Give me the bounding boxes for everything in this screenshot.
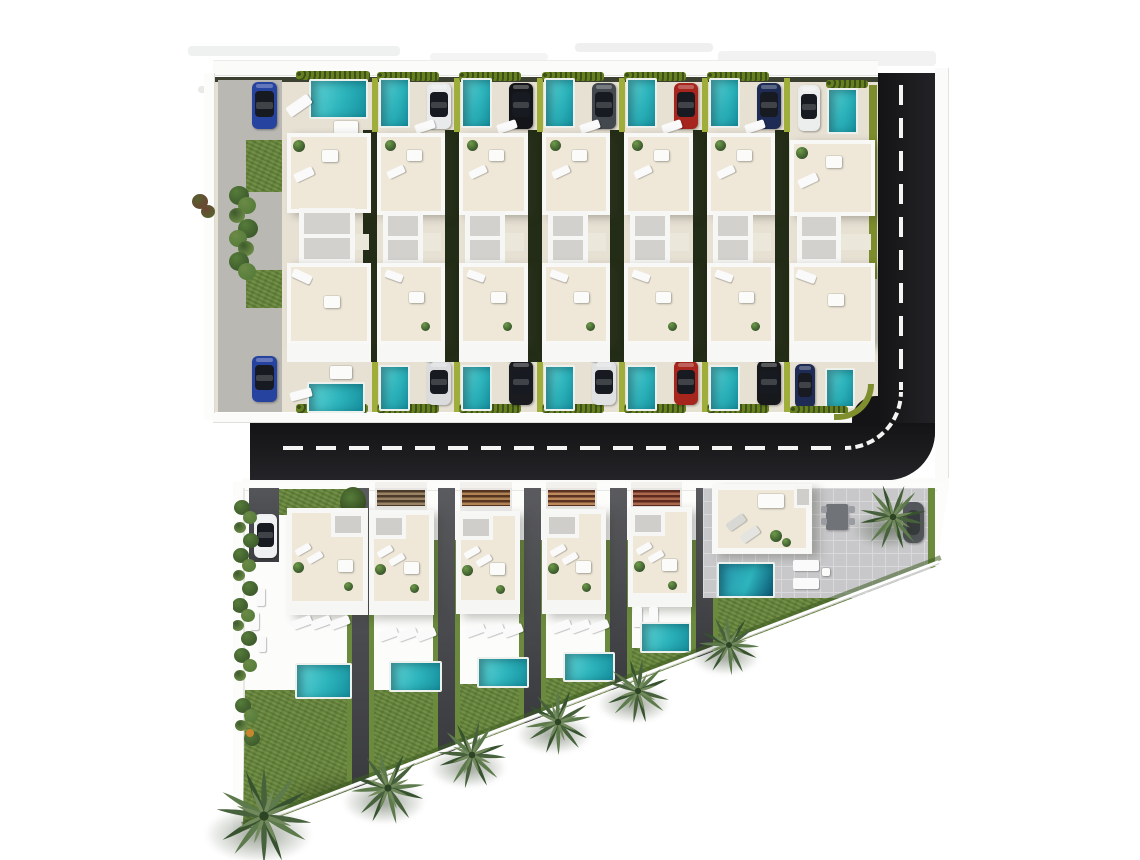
plant — [586, 322, 595, 331]
plant — [421, 322, 430, 331]
site-plan-stage — [0, 0, 1140, 860]
swimming-pool — [379, 78, 410, 128]
car-hood — [802, 87, 816, 91]
green-divider — [454, 78, 460, 132]
atrium-divider — [388, 236, 418, 240]
dining-set — [826, 156, 842, 168]
car-hood — [678, 363, 694, 367]
shrub — [243, 659, 257, 672]
swimming-pool — [477, 657, 529, 688]
shrub — [235, 720, 247, 731]
car-hood — [256, 84, 273, 88]
car-hood — [678, 85, 694, 89]
car-hood — [799, 366, 811, 370]
building-gap — [775, 130, 789, 362]
terrace-edge — [458, 600, 518, 612]
dining-set — [490, 563, 505, 575]
sidewalk — [204, 73, 215, 420]
atrium-divider — [635, 236, 665, 240]
skylight-panel — [372, 514, 406, 539]
palm-tree — [212, 764, 316, 860]
atrium-skylight — [548, 211, 588, 265]
dining-set — [758, 494, 784, 508]
swimming-pool — [307, 382, 365, 413]
shrub — [242, 559, 256, 572]
skylight-panel — [545, 513, 579, 538]
car-roof — [513, 102, 529, 108]
car-hood — [256, 358, 273, 362]
swimming-pool — [717, 562, 775, 598]
atrium-skylight — [630, 211, 670, 265]
dining-set — [330, 366, 352, 379]
parked-car — [798, 85, 820, 131]
car-roof — [678, 379, 694, 385]
atrium-divider — [718, 236, 748, 240]
atrium-skylight — [713, 211, 753, 265]
plant — [293, 140, 305, 152]
terrace-edge — [542, 345, 610, 362]
shrub — [234, 522, 246, 533]
terrace-edge — [630, 593, 690, 605]
building-gap — [445, 130, 459, 362]
pergola — [375, 488, 427, 508]
car-roof — [761, 102, 777, 108]
swimming-pool — [461, 78, 492, 128]
car-hood — [761, 85, 777, 89]
sun-lounger — [258, 636, 266, 652]
dining-set — [574, 292, 589, 303]
shrub — [241, 609, 255, 622]
atrium-skylight — [383, 211, 423, 265]
terrace-edge — [707, 345, 775, 362]
car-hood — [596, 363, 612, 367]
chair — [849, 506, 855, 513]
plant — [503, 322, 512, 331]
shrub — [243, 533, 259, 548]
car-roof — [596, 102, 612, 108]
car-hood — [431, 363, 447, 367]
car-roof — [799, 382, 811, 388]
terrace-edge — [459, 345, 528, 362]
car-hood — [596, 85, 612, 89]
swimming-pool — [379, 365, 410, 411]
plant — [467, 140, 478, 151]
car-roof — [258, 532, 273, 538]
swimming-pool — [709, 365, 740, 411]
sun-lounger — [793, 560, 819, 571]
green-divider — [372, 78, 378, 132]
pergola — [546, 488, 597, 508]
atrium-skylight — [299, 208, 355, 264]
dining-set — [654, 150, 669, 161]
parked-car — [592, 361, 616, 405]
green-divider — [702, 78, 708, 132]
dining-set — [404, 562, 419, 574]
shrub — [243, 511, 257, 524]
sun-lounger — [793, 578, 819, 589]
outer-sidewalk-mark — [188, 46, 400, 56]
car-roof — [513, 379, 529, 385]
skylight-panel — [331, 512, 365, 537]
swimming-pool — [626, 365, 657, 411]
skylight-panel — [794, 486, 812, 508]
chair — [821, 518, 827, 525]
dining-set — [656, 292, 671, 303]
plant — [632, 140, 643, 151]
plant — [550, 140, 561, 151]
green-divider — [619, 78, 625, 132]
road-center-line — [899, 85, 903, 390]
road-horizontal — [250, 423, 935, 480]
building-gap — [610, 130, 624, 362]
roof-bridge — [355, 234, 369, 250]
plant — [375, 564, 386, 575]
dining-set — [576, 561, 591, 573]
terrace-edge — [544, 600, 604, 612]
parked-car — [509, 361, 533, 405]
car-roof — [256, 375, 273, 381]
terrace-edge — [289, 601, 366, 613]
roof-bridge — [670, 233, 689, 251]
dining-set — [324, 296, 340, 308]
terrace-edge — [287, 345, 371, 362]
plant — [751, 322, 760, 331]
swimming-pool — [709, 78, 740, 128]
car-roof — [596, 379, 612, 385]
palm-tree — [433, 716, 512, 795]
chair — [821, 506, 827, 513]
plant — [344, 582, 353, 591]
roof-bridge — [505, 233, 524, 251]
atrium-divider — [553, 236, 583, 240]
shrub — [241, 631, 257, 646]
dining-set — [822, 568, 830, 576]
sidewalk-line — [948, 75, 949, 478]
plant — [782, 538, 791, 547]
shrub — [244, 709, 258, 722]
swimming-pool — [389, 661, 442, 692]
terrace-edge — [624, 345, 693, 362]
atrium-skylight — [465, 211, 505, 265]
terrace-edge — [377, 345, 445, 362]
car-roof — [761, 379, 777, 385]
atrium-divider — [802, 236, 836, 240]
palm-tree — [598, 651, 677, 730]
atrium-divider — [304, 234, 350, 238]
skylight-panel — [631, 511, 665, 536]
flower-shrub — [246, 729, 254, 737]
parked-car — [795, 364, 815, 408]
shrub — [238, 263, 256, 280]
swimming-pool — [309, 79, 368, 119]
shrub — [234, 670, 246, 681]
car-hood — [431, 85, 447, 89]
green-divider — [784, 362, 790, 412]
plant — [796, 147, 808, 159]
terrace-edge — [371, 601, 432, 613]
plant — [496, 585, 505, 594]
dining-set — [828, 294, 844, 306]
pergola — [460, 488, 512, 508]
dining-set — [409, 292, 424, 303]
plant — [410, 584, 419, 593]
plant — [715, 140, 726, 151]
road-center-line — [283, 446, 843, 450]
swimming-pool — [827, 88, 858, 134]
plant — [582, 583, 591, 592]
dining-set — [737, 150, 752, 161]
roof-bridge — [753, 233, 771, 251]
dining-set — [739, 292, 754, 303]
swimming-pool — [626, 78, 657, 128]
roof-bridge — [588, 233, 606, 251]
pergola — [631, 488, 682, 508]
car-hood — [513, 85, 529, 89]
plant — [462, 565, 473, 576]
car-roof — [678, 102, 694, 108]
atrium-divider — [470, 236, 500, 240]
parked-car — [252, 356, 277, 402]
outer-sidewalk-mark — [575, 43, 713, 52]
parked-car — [252, 82, 277, 129]
plant — [548, 563, 559, 574]
parked-car — [427, 361, 451, 405]
green-divider — [537, 78, 543, 132]
plant — [293, 562, 304, 573]
terrace-edge — [790, 345, 875, 362]
car-hood — [761, 363, 777, 367]
skylight-panel — [459, 515, 493, 540]
car-roof — [431, 379, 447, 385]
dining-set — [662, 559, 677, 571]
lawn-strip — [246, 140, 282, 192]
shrub — [232, 620, 244, 631]
shrub — [233, 570, 245, 581]
swimming-pool — [461, 365, 492, 411]
swimming-pool — [544, 365, 575, 411]
swimming-pool — [295, 663, 352, 699]
plant — [668, 581, 677, 590]
dining-set — [491, 292, 506, 303]
palm-tree — [850, 474, 935, 559]
dining-set — [322, 150, 338, 162]
plant — [770, 530, 782, 542]
patio-dining-set — [826, 504, 848, 530]
dining-set — [489, 150, 504, 161]
parked-car — [674, 361, 698, 405]
building-gap — [693, 130, 707, 362]
shrub — [201, 205, 215, 218]
green-divider — [784, 78, 790, 132]
roof-bridge — [841, 234, 871, 250]
plant — [634, 561, 645, 572]
sidewalk — [213, 413, 878, 423]
dining-set — [572, 150, 587, 161]
car-hood — [513, 363, 529, 367]
dining-set — [407, 150, 422, 161]
dining-set — [338, 560, 353, 572]
plant — [385, 140, 396, 151]
swimming-pool — [544, 78, 575, 128]
car-roof — [431, 102, 447, 108]
sidewalk — [935, 68, 949, 482]
car-roof — [802, 104, 816, 110]
shrub — [242, 581, 258, 596]
plant — [668, 322, 677, 331]
car-hood — [258, 516, 273, 520]
atrium-skylight — [797, 212, 841, 264]
hedge — [826, 80, 868, 88]
car-roof — [256, 102, 273, 109]
roof-bridge — [423, 233, 441, 251]
building-gap — [528, 130, 542, 362]
parked-car — [757, 361, 781, 405]
